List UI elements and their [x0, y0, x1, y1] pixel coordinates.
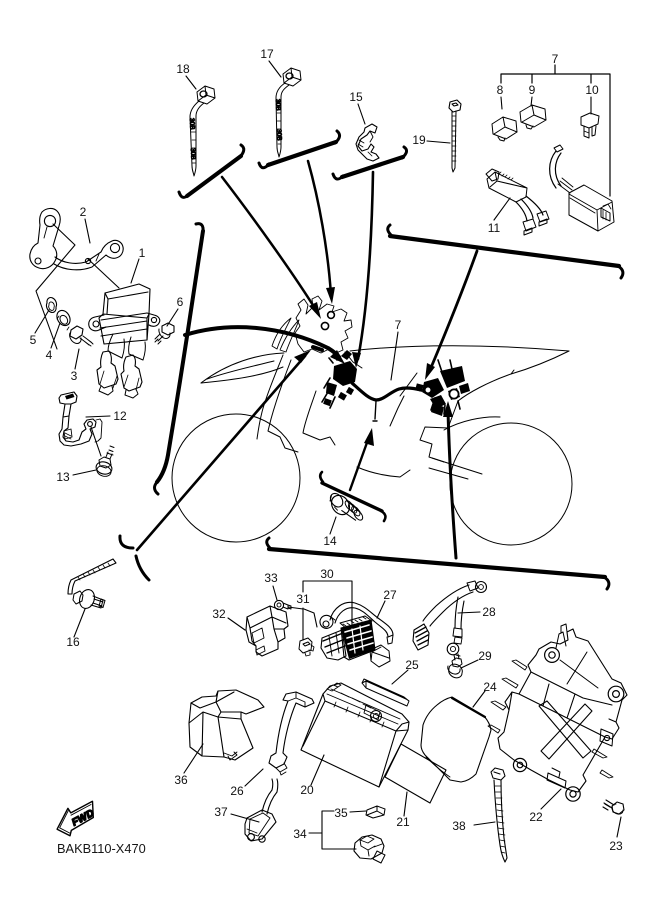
svg-text:3: 3	[71, 369, 78, 383]
svg-text:22: 22	[529, 810, 543, 824]
svg-text:30B: 30B	[189, 148, 197, 160]
svg-text:13: 13	[56, 470, 70, 484]
svg-text:18: 18	[176, 62, 190, 76]
svg-text:21: 21	[396, 815, 410, 829]
svg-text:30: 30	[320, 567, 334, 581]
svg-text:30B: 30B	[188, 118, 196, 130]
svg-text:29: 29	[478, 649, 492, 663]
svg-text:25: 25	[405, 658, 419, 672]
svg-text:16: 16	[66, 635, 80, 649]
svg-text:36: 36	[174, 773, 188, 787]
svg-text:23: 23	[609, 839, 623, 853]
svg-text:38: 38	[452, 819, 466, 833]
svg-text:BAKB110-X470: BAKB110-X470	[57, 841, 146, 856]
svg-text:17: 17	[260, 47, 274, 61]
svg-text:10: 10	[585, 83, 599, 97]
svg-text:6: 6	[177, 295, 184, 309]
svg-text:27: 27	[383, 588, 397, 602]
svg-text:26: 26	[230, 784, 244, 798]
svg-text:15: 15	[349, 90, 363, 104]
svg-text:24: 24	[483, 680, 497, 694]
svg-text:7: 7	[395, 318, 402, 332]
svg-text:12: 12	[113, 409, 127, 423]
svg-text:28: 28	[482, 605, 496, 619]
svg-text:1: 1	[139, 246, 146, 260]
svg-text:30B: 30B	[274, 99, 282, 111]
svg-text:11: 11	[488, 221, 501, 235]
svg-text:9: 9	[529, 83, 536, 97]
svg-text:32: 32	[212, 607, 226, 621]
svg-text:8: 8	[497, 83, 504, 97]
svg-text:2: 2	[80, 205, 87, 219]
svg-text:4: 4	[46, 348, 53, 362]
svg-text:30B: 30B	[275, 129, 283, 141]
svg-text:5: 5	[30, 333, 37, 347]
svg-text:31: 31	[296, 592, 310, 606]
svg-text:34: 34	[293, 827, 307, 841]
svg-text:35: 35	[334, 806, 348, 820]
svg-text:14: 14	[323, 534, 337, 548]
svg-text:20: 20	[300, 783, 314, 797]
svg-text:19: 19	[412, 133, 426, 147]
svg-text:7: 7	[552, 52, 559, 66]
svg-text:37: 37	[214, 805, 228, 819]
svg-text:33: 33	[264, 571, 278, 585]
